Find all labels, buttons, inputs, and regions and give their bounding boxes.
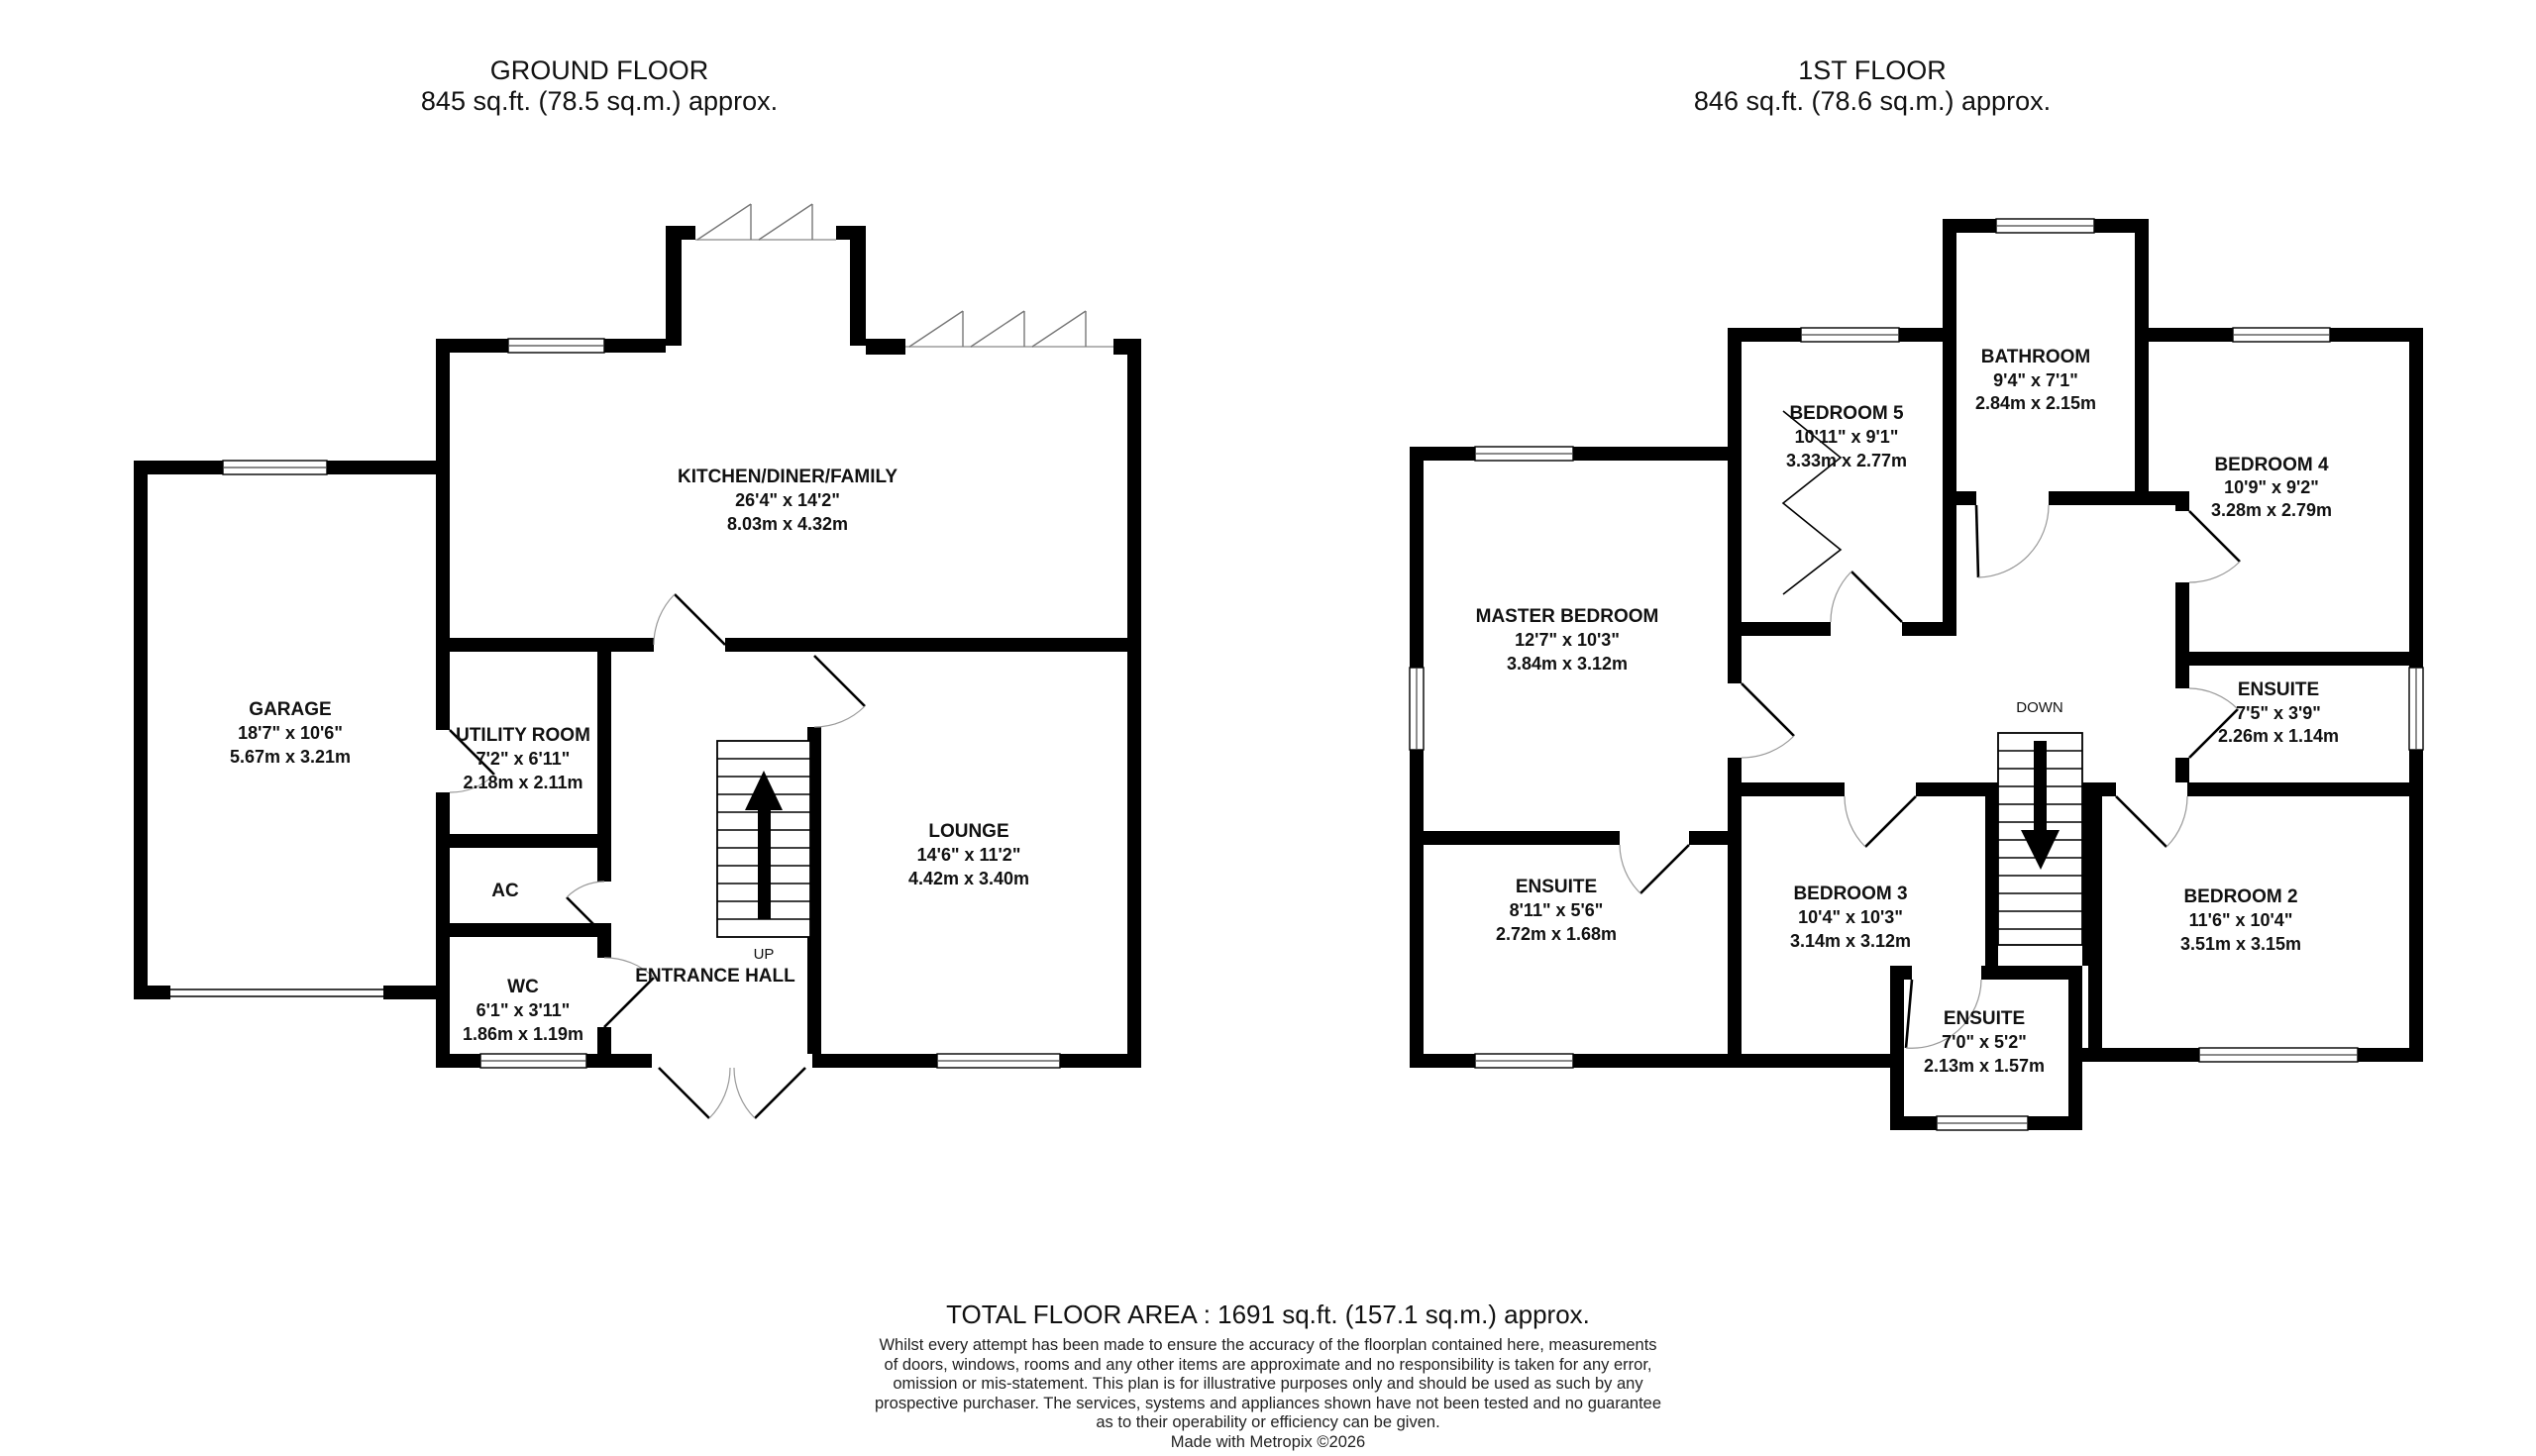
room-dims-ft: 7'2" x 6'11" — [476, 749, 571, 769]
room-label-master-bedroom: MASTER BEDROOM — [1476, 606, 1659, 627]
floorplan-page: GROUND FLOOR 845 sq.ft. (78.5 sq.m.) app… — [0, 0, 2536, 1456]
room-dims-ft: 11'6" x 10'4" — [2189, 910, 2293, 930]
window — [1475, 1054, 1573, 1068]
window — [1410, 668, 1424, 750]
room-label-ac: AC — [491, 881, 519, 901]
disclaimer: Whilst every attempt has been made to en… — [773, 1336, 1763, 1433]
stairs-up-label: UP — [754, 946, 775, 963]
room-label-bedroom-5: BEDROOM 5 — [1789, 403, 1904, 424]
room-label-ensuite-bottom: ENSUITE — [1944, 1008, 2025, 1029]
room-dims-m: 3.14m x 3.12m — [1790, 931, 1911, 951]
disclaimer-line: as to their operability or efficiency ca… — [773, 1413, 1763, 1433]
room-dims-m: 4.42m x 3.40m — [908, 869, 1029, 888]
room-label-bedroom-3: BEDROOM 3 — [1793, 884, 1907, 904]
window — [1801, 328, 1899, 342]
disclaimer-line: prospective purchaser. The services, sys… — [773, 1395, 1763, 1414]
window — [937, 1054, 1060, 1068]
room-label-kitchen: KITCHEN/DINER/FAMILY — [678, 467, 898, 487]
room-label-entrance-hall: ENTRANCE HALL — [635, 966, 795, 987]
ground-floor-labels: GARAGE 18'7" x 10'6" 5.67m x 3.21m KITCH… — [230, 467, 1029, 1044]
room-dims-m: 3.51m x 3.15m — [2180, 934, 2301, 954]
room-label-utility: UTILITY ROOM — [456, 725, 590, 746]
room-label-bedroom-4: BEDROOM 4 — [2214, 455, 2329, 475]
stairs-up — [717, 741, 810, 937]
disclaimer-line: omission or mis-statement. This plan is … — [773, 1375, 1763, 1395]
room-label-lounge: LOUNGE — [928, 821, 1008, 842]
room-dims-m: 3.84m x 3.12m — [1507, 654, 1628, 674]
window — [223, 461, 327, 474]
room-dims-m: 2.26m x 1.14m — [2218, 726, 2339, 746]
room-dims-ft: 12'7" x 10'3" — [1515, 630, 1620, 650]
room-dims-ft: 6'1" x 3'11" — [476, 1000, 571, 1020]
room-dims-m: 2.13m x 1.57m — [1924, 1056, 2045, 1076]
room-dims-m: 2.18m x 2.11m — [463, 773, 582, 792]
disclaimer-line: Whilst every attempt has been made to en… — [773, 1336, 1763, 1356]
room-dims-ft: 10'9" x 9'2" — [2224, 477, 2319, 497]
stairs-down — [1998, 733, 2082, 945]
glazing-hatch — [695, 204, 1113, 347]
stairs-down-label: DOWN — [2016, 699, 2063, 716]
first-floor-walls — [1410, 219, 2423, 1130]
window — [480, 1054, 586, 1068]
window — [1996, 219, 2094, 233]
metropix-credit: Made with Metropix ©2026 — [773, 1433, 1763, 1452]
room-label-wc: WC — [507, 977, 539, 997]
window — [2233, 328, 2330, 342]
total-floor-area: TOTAL FLOOR AREA : 1691 sq.ft. (157.1 sq… — [773, 1300, 1763, 1330]
room-dims-m: 3.33m x 2.77m — [1786, 451, 1907, 470]
room-dims-ft: 7'5" x 3'9" — [2236, 703, 2321, 723]
room-dims-ft: 10'11" x 9'1" — [1795, 427, 1899, 447]
room-label-garage: GARAGE — [249, 699, 331, 720]
room-dims-ft: 7'0" x 5'2" — [1942, 1032, 2027, 1052]
room-dims-ft: 9'4" x 7'1" — [1993, 370, 2078, 390]
room-dims-ft: 8'11" x 5'6" — [1510, 900, 1604, 920]
window — [2409, 668, 2423, 750]
room-dims-ft: 26'4" x 14'2" — [735, 490, 840, 510]
room-dims-m: 3.28m x 2.79m — [2211, 500, 2332, 520]
room-label-bathroom: BATHROOM — [1981, 347, 2090, 367]
room-dims-m: 5.67m x 3.21m — [230, 747, 351, 767]
disclaimer-line: of doors, windows, rooms and any other i… — [773, 1356, 1763, 1376]
room-dims-m: 1.86m x 1.19m — [463, 1024, 583, 1044]
window — [1937, 1116, 2028, 1130]
room-dims-m: 8.03m x 4.32m — [727, 514, 848, 534]
room-dims-ft: 18'7" x 10'6" — [238, 723, 343, 743]
window — [2199, 1048, 2358, 1062]
window — [1475, 447, 1573, 461]
floorplan-drawing: GARAGE 18'7" x 10'6" 5.67m x 3.21m KITCH… — [0, 0, 2536, 1456]
room-dims-ft: 14'6" x 11'2" — [917, 845, 1021, 865]
ground-floor-walls — [134, 226, 1141, 1068]
room-dims-m: 2.84m x 2.15m — [1975, 393, 2096, 413]
room-dims-m: 2.72m x 1.68m — [1496, 924, 1617, 944]
room-dims-ft: 10'4" x 10'3" — [1798, 907, 1903, 927]
room-label-ensuite-left: ENSUITE — [1516, 877, 1597, 897]
room-label-bedroom-2: BEDROOM 2 — [2183, 886, 2297, 907]
window — [508, 339, 604, 353]
room-label-ensuite-right: ENSUITE — [2238, 679, 2319, 700]
